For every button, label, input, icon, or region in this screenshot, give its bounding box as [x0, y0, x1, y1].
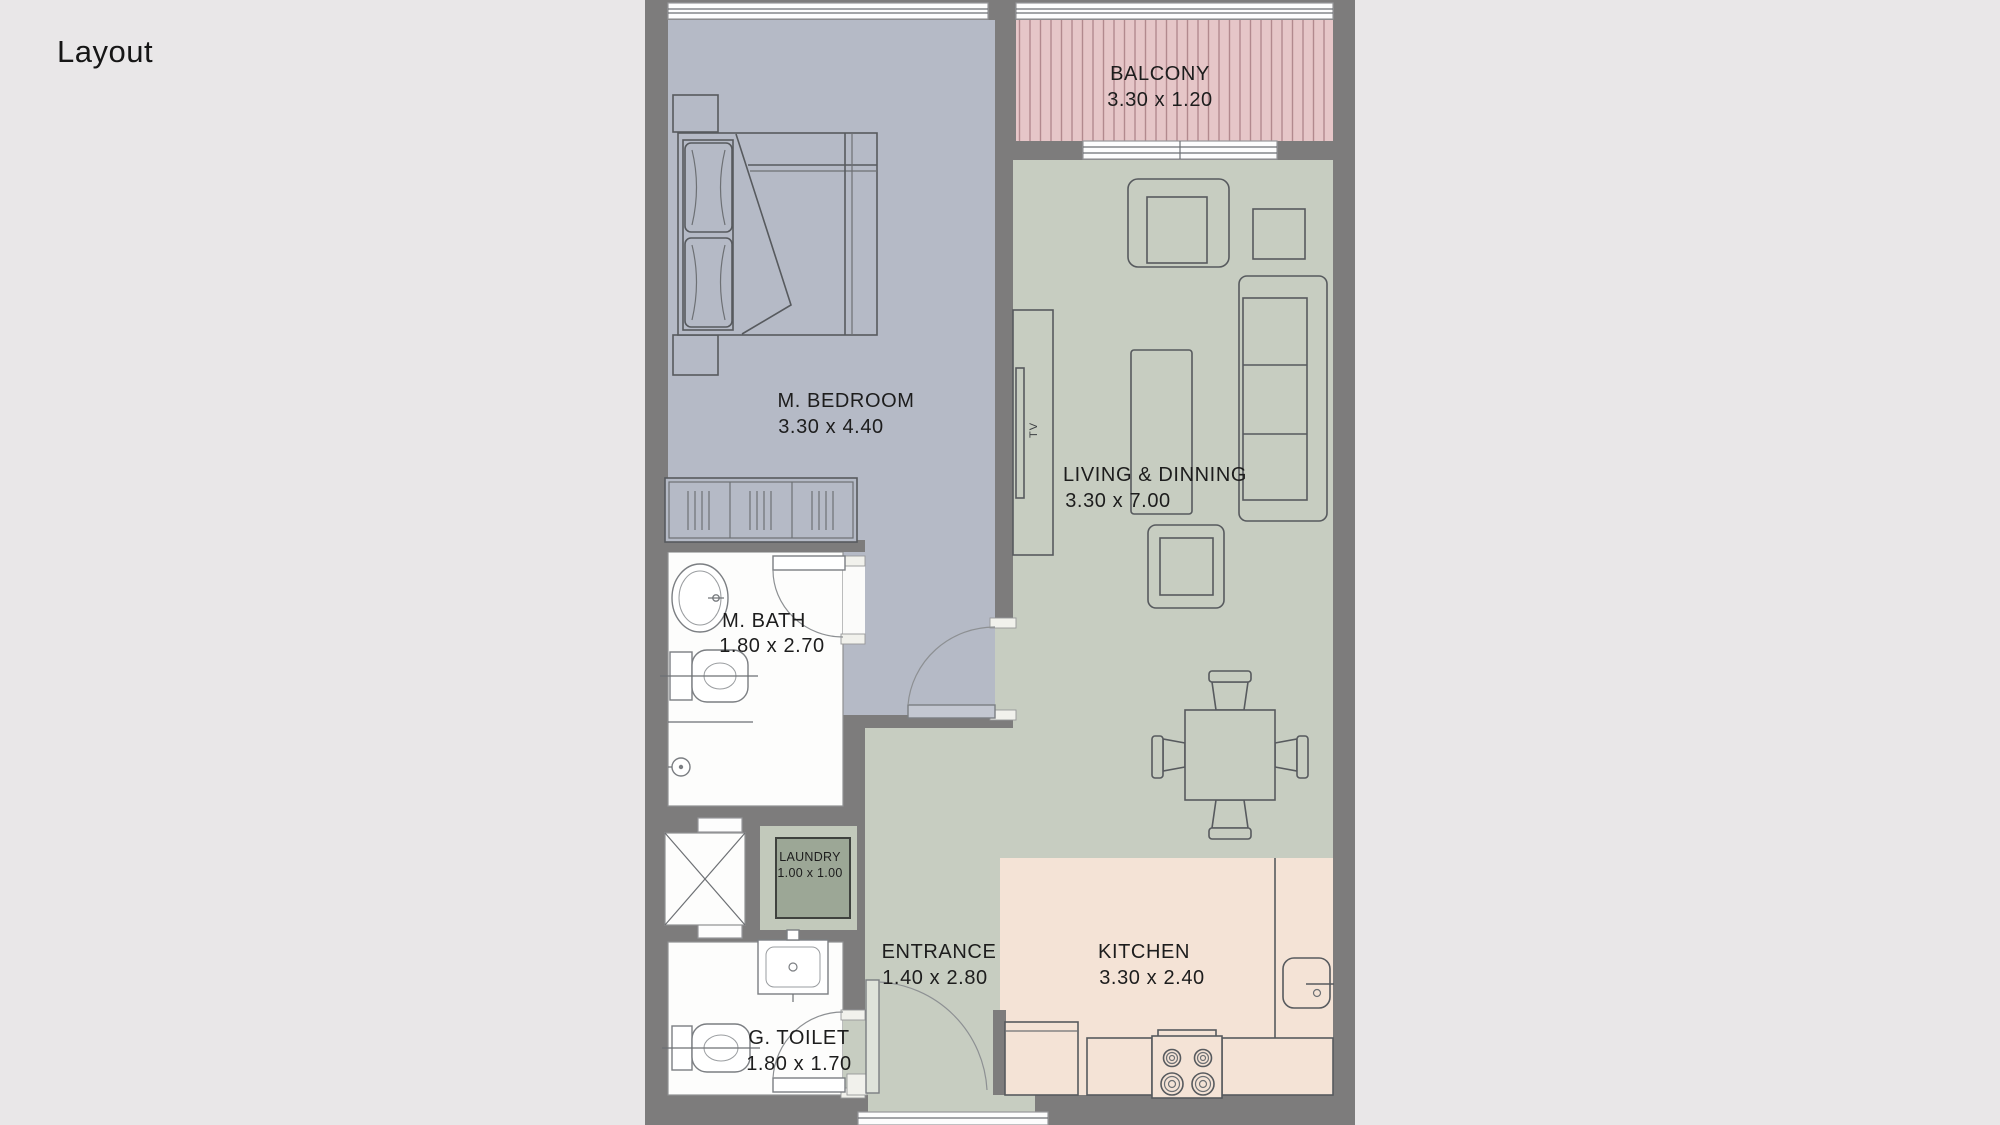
nightstand — [673, 95, 718, 132]
kitchen-counter — [1222, 1038, 1333, 1095]
mbath-sink — [672, 564, 728, 632]
label-mbath-dims: 1.80 x 2.70 — [719, 635, 825, 657]
label-balcony-dims: 3.30 x 1.20 — [1107, 89, 1213, 111]
room-entrance-floor — [865, 728, 1013, 1095]
label-kitchen-dims: 3.30 x 2.40 — [1099, 967, 1205, 989]
service-shaft — [665, 818, 745, 938]
kitchen-counter — [1087, 1038, 1152, 1095]
dining-chair — [1209, 671, 1251, 710]
kitchen-counter-sink — [1005, 1022, 1078, 1095]
gtoilet-sink — [758, 930, 828, 1002]
side-table — [1253, 209, 1305, 259]
bedroom-window — [668, 3, 988, 19]
balcony-sliding-window — [1083, 141, 1277, 159]
mbath-toilet — [660, 650, 758, 702]
fridge-icon — [1283, 958, 1334, 1008]
balcony-top-window — [1016, 3, 1333, 19]
label-entrance-dims: 1.40 x 2.80 — [882, 967, 988, 989]
label-kitchen: KITCHEN — [1098, 941, 1190, 963]
bed — [673, 95, 877, 375]
label-living: LIVING & DINNING — [1063, 464, 1247, 486]
wardrobe — [665, 478, 857, 542]
label-gtoilet-dims: 1.80 x 1.70 — [746, 1053, 852, 1075]
armchair-top — [1128, 179, 1229, 267]
dining-chair — [1209, 800, 1251, 839]
label-living-dims: 3.30 x 7.00 — [1065, 490, 1171, 512]
label-mbath: M. BATH — [722, 610, 806, 632]
label-laundry-dims: 1.00 x 1.00 — [777, 866, 842, 880]
tv-label: TV — [1028, 422, 1040, 438]
floor-plan: TV — [0, 0, 2000, 1125]
label-balcony: BALCONY — [1110, 63, 1210, 85]
nightstand — [673, 335, 718, 375]
dining-table — [1185, 710, 1275, 800]
tv-unit: TV — [1013, 310, 1053, 555]
label-laundry: LAUNDRY — [779, 850, 841, 864]
sofa — [1239, 276, 1327, 521]
label-bedroom: M. BEDROOM — [777, 390, 914, 412]
label-entrance: ENTRANCE — [882, 941, 997, 963]
armchair-bottom — [1148, 525, 1224, 608]
label-bedroom-dims: 3.30 x 4.40 — [778, 416, 884, 438]
stove-icon — [1152, 1030, 1222, 1098]
wall-kitchen-stub — [993, 1010, 1006, 1095]
label-gtoilet: G. TOILET — [748, 1027, 849, 1049]
floor-plan-page: Layout — [0, 0, 2000, 1125]
